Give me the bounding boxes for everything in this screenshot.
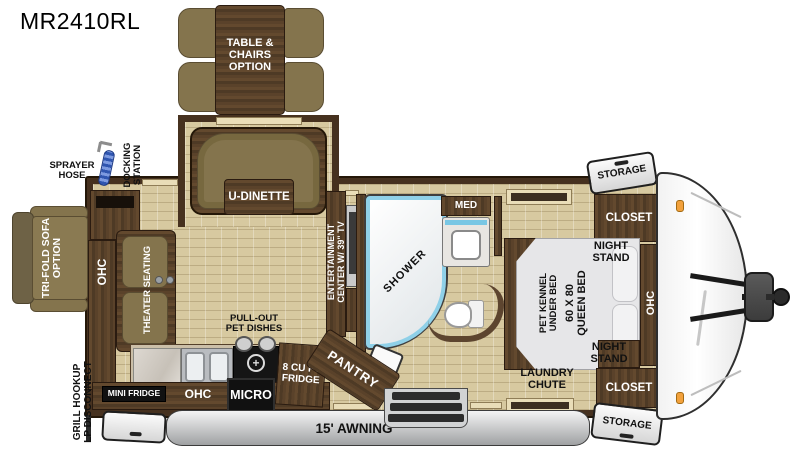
tongue-jack [772,288,790,306]
sprayer-hose-label: SPRAYER HOSE [46,161,98,182]
shower-label: SHOWER [382,248,430,296]
microwave: MICRO [227,378,275,414]
sink-bowl [451,230,481,260]
option-chair [284,62,324,112]
option-chair [284,8,324,58]
window-glass [511,193,567,201]
tri-fold-sofa-back [12,212,34,304]
med-cabinet: MED [441,196,491,216]
sink-basin [185,352,205,382]
step [392,392,460,400]
rv-floorplan: MR2410RL TABLE & CHAIRS OPTION U-DINETTE… [0,0,800,464]
closet-front-bottom: CLOSET [596,368,662,408]
slideout-window [216,117,302,125]
hatch-handle [619,433,633,439]
tongue-jack-stem [766,294,774,300]
sink-basin [209,352,229,382]
marker-light [676,200,684,212]
entertainment-label: ENTERTAINMENT CENTER W/ 39" TV [325,187,349,337]
night-stand-top-label: NIGHT STAND [586,241,636,265]
window [470,402,502,409]
mini-fridge: MINI FRIDGE [102,386,166,402]
cupholder [166,276,174,284]
marker-light [676,392,684,404]
ohc-kitchen-label: OHC [168,388,228,401]
toilet-bowl [444,302,472,328]
laundry-chute-label: LAUNDRY CHUTE [518,368,576,392]
u-dinette-label: U-DINETTE [228,191,289,203]
hatch-handle [130,432,142,437]
dinette-table: U-DINETTE [224,179,294,215]
step [390,403,462,411]
step [388,414,464,422]
exterior-hatch-open [101,410,166,443]
docking-station-label: DOCKING STATION [121,105,145,225]
night-stand-bottom-label: NIGHT STAND [584,342,634,366]
burner: + [247,354,265,372]
pet-dish [235,336,253,352]
pet-dish [258,336,276,352]
option-chair [178,62,218,112]
ohc-left-label: OHC [90,222,114,322]
table-chairs-option-label: TABLE & CHAIRS OPTION [224,38,276,74]
storage-hatch-front-bottom: STORAGE [590,402,664,446]
window-glass [511,402,569,409]
closet-front-top: CLOSET [594,194,664,242]
bath-bedroom-wall [494,196,502,256]
sprayer-handle-icon [97,142,102,152]
grill-hookup-label: GRILL HOOKUP LP DISCONNECT [72,322,96,464]
page-title: MR2410RL [20,8,140,35]
bedroom-window-top [506,189,572,205]
vanity-accent [445,220,487,225]
theater-seating-label: THEATER SEATING [136,230,160,350]
tri-fold-sofa-label: TRI-FOLD SOFA OPTION [40,178,64,338]
pet-kennel-label: PET KENNEL UNDER BED [537,243,561,363]
option-chair [178,8,218,58]
window [142,179,178,186]
pet-dishes-label: PULL-OUT PET DISHES [222,314,286,335]
